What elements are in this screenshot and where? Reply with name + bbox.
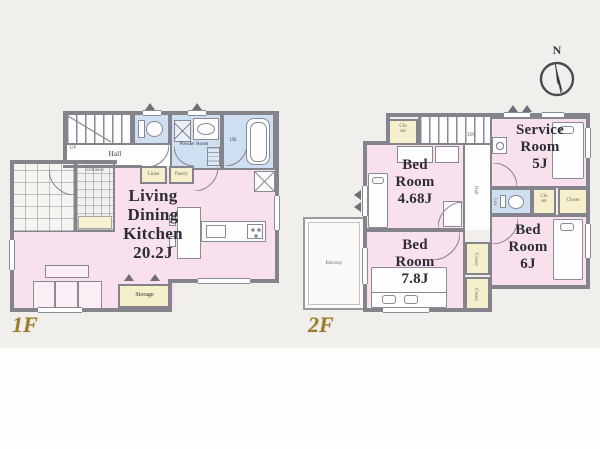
window	[542, 112, 564, 118]
wall-segment	[488, 285, 590, 289]
powder-room-label: Powder Room	[168, 142, 220, 147]
ub-label: UB	[226, 138, 240, 143]
bedroom-6-label: Bed Room 6J	[496, 222, 560, 272]
lav-label: Lav	[492, 194, 497, 210]
balcony-label: Balcony	[305, 261, 363, 266]
sofa-seam	[54, 282, 56, 308]
door-arc	[225, 144, 247, 166]
stairs-dn-label: DN	[464, 133, 478, 138]
floor1-label: 1F	[12, 312, 38, 338]
window	[274, 196, 280, 230]
bedroom-468-label: Bed Room 4.68J	[379, 157, 451, 207]
hall-1f-label: Hall	[95, 151, 135, 159]
bathtub-inner-icon	[250, 122, 267, 162]
toilet-icon	[500, 195, 506, 208]
vent-mark	[192, 103, 202, 110]
closet-2f-upper-label: Clo set	[389, 124, 417, 134]
vent-mark	[508, 105, 518, 112]
window	[143, 110, 161, 116]
pillow-icon	[404, 295, 418, 304]
door-arc	[147, 145, 169, 167]
window	[585, 128, 591, 158]
window	[188, 110, 206, 116]
window	[38, 307, 82, 313]
stairs-up-label: UP	[66, 146, 80, 151]
service-room-label: Service Room 5J	[500, 122, 580, 172]
balcony-door	[362, 248, 368, 284]
washer-pan-icon	[207, 147, 220, 166]
door-swing-mark	[124, 274, 134, 281]
refrigerator-space-icon	[254, 171, 275, 192]
wall-segment	[63, 111, 67, 164]
pantry-label: Pantry	[169, 172, 194, 177]
window	[504, 112, 530, 118]
window	[9, 240, 15, 270]
floorplan-canvas: Hall UP Powder Room UB Linen Pantry Entr…	[0, 0, 600, 449]
vent-mark	[522, 105, 532, 112]
hall-2f-label: Hall	[473, 175, 478, 205]
sofa-seam	[77, 282, 79, 308]
vent-mark	[354, 202, 361, 212]
floor2-label: 2F	[308, 312, 334, 338]
storage-label: Storage	[120, 292, 169, 298]
sofa-icon	[33, 281, 102, 309]
linen-label: Linen	[141, 172, 166, 177]
closet-b2-label: Closet	[473, 282, 478, 306]
stairs-1f	[65, 113, 133, 145]
window	[362, 186, 368, 216]
vent-mark	[354, 190, 361, 200]
ldk-label: Living Dining Kitchen 20.2J	[98, 186, 208, 262]
closet-2f-wc-label: Clo set	[533, 194, 555, 204]
wall-segment	[63, 111, 279, 115]
pillow-icon	[382, 295, 396, 304]
stove-icon	[247, 224, 263, 239]
window	[585, 224, 591, 258]
vent-mark	[145, 103, 155, 110]
window	[383, 307, 429, 313]
bedroom-78-label: Bed Room 7.8J	[379, 237, 451, 287]
toilet-bowl-icon	[508, 195, 524, 209]
wall-segment	[363, 141, 367, 312]
toilet-bowl-icon	[146, 121, 163, 137]
closet-b1-label: Closet	[473, 247, 478, 271]
closet-2f-wide-label: Closet	[558, 198, 588, 203]
door-arc	[49, 169, 75, 195]
toilet-icon	[138, 120, 145, 138]
stairs-diagonal-line	[67, 115, 131, 143]
wall-segment	[10, 160, 14, 312]
door-swing-mark	[150, 274, 160, 281]
entrance-label: Entrance	[76, 168, 114, 173]
door-arc	[174, 146, 194, 166]
window	[198, 278, 250, 284]
pillow-icon	[560, 223, 574, 231]
low-table-icon	[45, 265, 89, 278]
compass-north-label: N	[548, 44, 566, 57]
compass-icon	[532, 52, 582, 102]
sink-basin-icon	[197, 123, 215, 135]
compass: N	[532, 44, 582, 102]
kitchen-sink-icon	[206, 225, 226, 238]
bed-line	[372, 292, 446, 293]
washing-machine-icon	[174, 120, 191, 142]
